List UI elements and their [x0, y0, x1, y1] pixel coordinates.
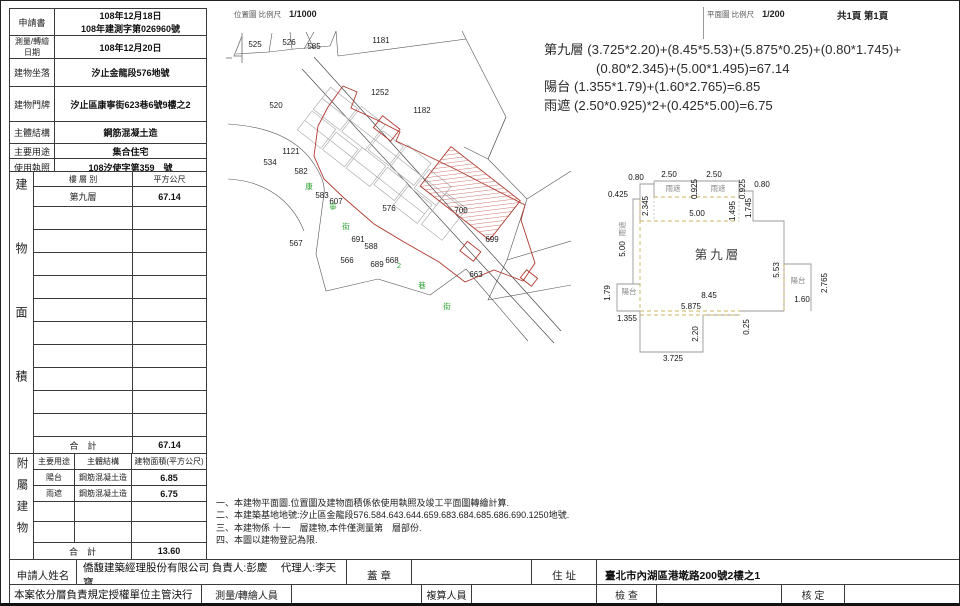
table-row — [10, 230, 207, 253]
location-map: 5255265851181520125211825341121582583607… — [226, 29, 571, 359]
info-value-cell: 108年12月18日 108年建測字第026960號 — [55, 9, 207, 36]
empty-cell — [133, 368, 207, 391]
parcel-number: 1121 — [282, 147, 300, 156]
empty-cell — [133, 276, 207, 299]
approve-label: 核 定 — [782, 585, 845, 605]
empty-cell — [133, 391, 207, 414]
info-value-cell: 汐止金龍段576地號 — [55, 59, 207, 87]
empty-cell — [75, 502, 132, 522]
dimension-label: 1.495 — [728, 200, 737, 221]
hatched-building — [420, 147, 520, 241]
dimension-label: 1.79 — [603, 285, 612, 301]
annex-side-cell: 附屬建物 — [10, 454, 34, 560]
table-row — [10, 368, 207, 391]
table-row — [10, 414, 207, 437]
formula-floor9-line1: 第九層 (3.725*2.20)+(8.45*5.53)+(5.875*0.25… — [544, 41, 959, 60]
empty-cell — [34, 368, 133, 391]
area-col1-header: 樓 層 別 — [34, 172, 133, 187]
approve-signature-cell — [845, 585, 960, 605]
annex-header-structure: 主體結構 — [75, 454, 132, 470]
dimension-label: 3.725 — [663, 354, 684, 363]
dimension-label: 1.60 — [794, 295, 810, 304]
authority-note: 本案依分層負責規定授權單位主管決行 — [10, 585, 202, 605]
empty-cell — [34, 230, 133, 253]
floor-area-cell: 67.14 — [133, 187, 207, 207]
location-map-label: 位置圖 比例尺 — [234, 10, 281, 19]
parcel-number: 534 — [263, 158, 277, 167]
building-area-table: 建物面積 樓 層 別 平方公尺 第九層 67.14 合 計 67.14 — [9, 171, 207, 454]
table-row — [10, 207, 207, 230]
annex-structure-cell: 鋼筋混凝土造 — [75, 470, 132, 486]
table-row: 合 計 13.60 — [10, 543, 207, 560]
table-row — [10, 253, 207, 276]
table-row: 附屬建物 主要用途 主體結構 建物面積(平方公尺) — [10, 454, 207, 470]
annex-side-label: 附屬建物 — [14, 457, 30, 557]
annex-header-area: 建物面積(平方公尺) — [132, 454, 207, 470]
area-total-label: 合 計 — [34, 437, 133, 454]
parcel-number: 1252 — [371, 88, 389, 97]
dimension-label: 5.875 — [681, 302, 702, 311]
parcel-number: 700 — [454, 206, 468, 215]
surveyor-label: 測量/轉繪人員 — [202, 585, 292, 605]
table-row: 建物坐落 汐止金龍段576地號 — [10, 59, 207, 87]
note-1: 一、本建物平面圖.位置圖及建物面積係依使用執照及竣工平面圖轉繪計算. — [216, 497, 646, 509]
footer-row2: 本案依分層負責規定授權單位主管決行 測量/轉繪人員 複算人員 檢 查 核 定 — [9, 584, 960, 605]
table-row — [10, 502, 207, 522]
parcel-number: 525 — [248, 40, 262, 49]
room-label: 陽台 — [791, 275, 806, 285]
empty-cell — [133, 230, 207, 253]
room-label: 雨遮 — [666, 183, 681, 193]
location-map-scale: 1/1000 — [289, 9, 317, 19]
info-value-cell: 108年12月20日 — [55, 36, 207, 59]
empty-cell — [133, 345, 207, 368]
parcel-number: 582 — [294, 167, 308, 176]
empty-cell — [34, 414, 133, 437]
table-row — [10, 299, 207, 322]
parcel-number: 689 — [370, 260, 384, 269]
table-row: 第九層 67.14 — [10, 187, 207, 207]
dimension-label: 0.80 — [628, 173, 644, 182]
empty-cell — [133, 299, 207, 322]
empty-cell — [34, 345, 133, 368]
dimension-label: 5.00 — [618, 241, 627, 257]
application-date: 108年12月18日 — [57, 9, 204, 22]
empty-cell — [34, 502, 75, 522]
area-side-label: 建物面積 — [13, 178, 30, 448]
dimension-label: 2.50 — [706, 170, 722, 179]
empty-cell — [34, 391, 133, 414]
table-row: 合 計 67.14 — [10, 437, 207, 454]
info-label-cell: 主體結構 — [10, 122, 55, 144]
dimension-label: 0.925 — [738, 178, 747, 199]
location-map-title: 位置圖 比例尺1/1000 — [234, 9, 317, 20]
application-number: 108年建測字第026960號 — [57, 22, 204, 35]
note-4: 四、本圖以建物登記為限. — [216, 534, 646, 546]
annex-structure-cell: 鋼筋混凝土造 — [75, 486, 132, 502]
formula-canopy: 雨遮 (2.50*0.925)*2+(0.425*5.00)=6.75 — [544, 97, 959, 116]
plan-title: 平面圖 比例尺1/200 — [707, 9, 785, 20]
dimension-label: 2.765 — [820, 272, 829, 293]
area-col2-header: 平方公尺 — [133, 172, 207, 187]
table-row: 雨遮 鋼筋混凝土造 6.75 — [10, 486, 207, 502]
empty-cell — [34, 322, 133, 345]
table-row: 本案依分層負責規定授權單位主管決行 測量/轉繪人員 複算人員 檢 查 核 定 — [10, 585, 960, 605]
floor-cell: 第九層 — [34, 187, 133, 207]
area-total-value: 67.14 — [133, 437, 207, 454]
page-number: 共1頁 第1頁 — [837, 8, 888, 22]
area-formulas: 第九層 (3.725*2.20)+(8.45*5.53)+(5.875*0.25… — [544, 41, 959, 115]
parcel-number: 583 — [315, 191, 329, 200]
room-label: 陽台 — [622, 286, 637, 296]
dimension-label: 0.425 — [608, 190, 629, 199]
info-label-cell: 主要用途 — [10, 144, 55, 159]
dimension-label: 1.355 — [617, 314, 638, 323]
street-name-char: 寧 — [329, 201, 337, 211]
table-row — [10, 276, 207, 299]
parcel-number: 566 — [340, 256, 354, 265]
street-name-char: 巷 — [418, 281, 426, 290]
dimension-label: 0.25 — [742, 319, 751, 335]
recheck-signature-cell — [472, 585, 597, 605]
dimension-label: 5.00 — [689, 209, 705, 218]
annex-area-cell: 6.75 — [132, 486, 207, 502]
annex-use-cell: 雨遮 — [34, 486, 75, 502]
plan-floor-title: 第九層 — [695, 248, 742, 262]
info-value-cell: 集合住宅 — [55, 144, 207, 159]
title-divider — [703, 7, 704, 39]
empty-cell — [34, 253, 133, 276]
inspect-label: 檢 查 — [597, 585, 657, 605]
survey-document-sheet: 位置圖 比例尺1/1000 平面圖 比例尺1/200 共1頁 第1頁 申請書 1… — [0, 0, 960, 606]
table-row — [10, 322, 207, 345]
plan-scale: 1/200 — [762, 9, 785, 19]
table-row — [10, 391, 207, 414]
dimension-label: 2.345 — [641, 195, 650, 216]
table-row — [10, 522, 207, 543]
annex-use-cell: 陽台 — [34, 470, 75, 486]
parcel-number: 585 — [307, 42, 321, 51]
parcel-number: 1182 — [413, 106, 431, 115]
dimension-label: 0.925 — [690, 178, 699, 199]
empty-cell — [34, 207, 133, 230]
empty-cell — [133, 207, 207, 230]
note-3: 三、本建物係 十一 層建物,本件僅測量第 層部份. — [216, 522, 646, 534]
recheck-label: 複算人員 — [422, 585, 472, 605]
info-label-cell: 測量/轉繪日期 — [10, 36, 55, 59]
empty-cell — [132, 522, 207, 543]
dimension-label: 1.745 — [744, 197, 753, 218]
table-row — [10, 345, 207, 368]
room-label: 雨遮 — [711, 183, 726, 193]
parcel-number: 699 — [485, 235, 499, 244]
info-label-cell: 申請書 — [10, 9, 55, 36]
empty-cell — [133, 322, 207, 345]
annex-header-use: 主要用途 — [34, 454, 75, 470]
dimension-label: 0.80 — [754, 180, 770, 189]
table-row: 建物面積 樓 層 別 平方公尺 — [10, 172, 207, 187]
table-row: 陽台 鋼筋混凝土造 6.85 — [10, 470, 207, 486]
parcel-number: 663 — [469, 270, 483, 279]
dimension-label: 2.20 — [691, 326, 700, 342]
formula-floor9-line2: (0.80*2.345)+(5.00*1.495)=67.14 — [544, 60, 959, 79]
north-arrow-icon — [226, 33, 242, 63]
info-label-cell: 建物門牌 — [10, 87, 55, 122]
parcel-number: 691 — [351, 235, 365, 244]
floor-plan: 0.802.500.9252.500.9250.800.4252.3455.00… — [596, 156, 846, 371]
dimension-label: 5.53 — [772, 262, 781, 278]
info-table: 申請書 108年12月18日 108年建測字第026960號 測量/轉繪日期 1… — [9, 8, 207, 177]
table-row: 主體結構 鋼筋混凝土造 — [10, 122, 207, 144]
empty-cell — [34, 276, 133, 299]
street-name-char: 2 — [397, 261, 401, 270]
parcel-number: 576 — [382, 204, 396, 213]
room-label: 雨遮 — [617, 221, 627, 236]
table-row: 測量/轉繪日期 108年12月20日 — [10, 36, 207, 59]
table-row: 申請書 108年12月18日 108年建測字第026960號 — [10, 9, 207, 36]
empty-cell — [34, 299, 133, 322]
note-2: 二、本建築基地地號:汐止區金龍段576.584.643.644.659.683.… — [216, 509, 646, 521]
empty-cell — [132, 502, 207, 522]
info-value-cell: 汐止區康寧街623巷6號9樓之2 — [55, 87, 207, 122]
annex-table: 附屬建物 主要用途 主體結構 建物面積(平方公尺) 陽台 鋼筋混凝土造 6.85… — [9, 453, 207, 560]
parcel-number: 526 — [282, 38, 296, 47]
inspect-signature-cell — [657, 585, 782, 605]
parcel-number: 588 — [364, 242, 378, 251]
plan-label: 平面圖 比例尺 — [707, 10, 754, 19]
empty-cell — [75, 522, 132, 543]
empty-cell — [133, 414, 207, 437]
area-side-cell: 建物面積 — [10, 172, 34, 454]
annex-total-label: 合 計 — [34, 543, 132, 560]
info-label-cell: 建物坐落 — [10, 59, 55, 87]
annex-area-cell: 6.85 — [132, 470, 207, 486]
street-name-char: 街 — [443, 301, 451, 311]
parcel-boundaries — [228, 31, 571, 341]
table-row: 建物門牌 汐止區康寧街623巷6號9樓之2 — [10, 87, 207, 122]
street-name-char: 康 — [305, 181, 313, 191]
empty-cell — [133, 253, 207, 276]
formula-balcony: 陽台 (1.355*1.79)+(1.60*2.765)=6.85 — [544, 78, 959, 97]
surveyor-signature-cell — [292, 585, 422, 605]
dimension-label: 2.50 — [661, 170, 677, 179]
parcel-number: 567 — [289, 239, 303, 248]
empty-cell — [34, 522, 75, 543]
info-value-cell: 鋼筋混凝土造 — [55, 122, 207, 144]
dimension-label: 8.45 — [701, 291, 717, 300]
table-row: 主要用途 集合住宅 — [10, 144, 207, 159]
annex-total-value: 13.60 — [132, 543, 207, 560]
notes-block: 一、本建物平面圖.位置圖及建物面積係依使用執照及竣工平面圖轉繪計算. 二、本建築… — [216, 497, 646, 546]
street-name-char: 街 — [342, 221, 350, 231]
parcel-number: 1181 — [372, 36, 390, 45]
parcel-number: 520 — [269, 101, 283, 110]
